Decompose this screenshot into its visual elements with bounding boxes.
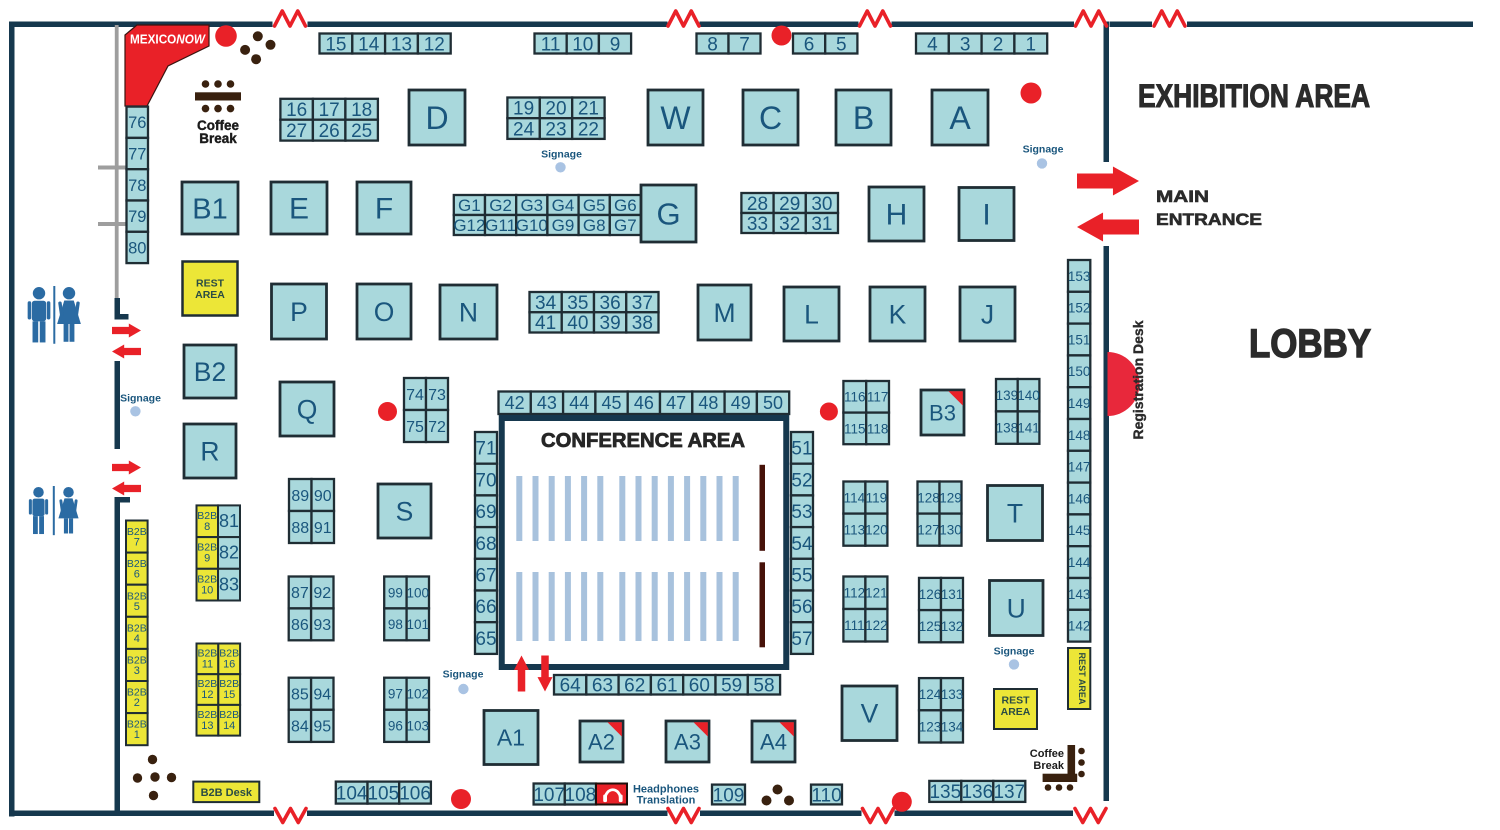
svg-text:G4: G4 xyxy=(552,196,575,215)
svg-text:89: 89 xyxy=(291,488,309,505)
svg-text:139: 139 xyxy=(996,388,1019,403)
svg-text:D: D xyxy=(425,100,448,136)
svg-text:68: 68 xyxy=(475,534,496,555)
svg-text:39: 39 xyxy=(600,313,621,334)
svg-text:142: 142 xyxy=(1068,619,1091,634)
svg-text:121: 121 xyxy=(865,586,888,601)
svg-text:46: 46 xyxy=(634,393,654,413)
svg-text:REST: REST xyxy=(1001,695,1030,707)
svg-text:43: 43 xyxy=(537,393,557,413)
svg-text:C: C xyxy=(759,100,782,136)
svg-text:22: 22 xyxy=(578,119,599,140)
svg-text:79: 79 xyxy=(128,208,146,226)
svg-text:51: 51 xyxy=(791,439,812,460)
svg-text:85: 85 xyxy=(291,687,309,704)
svg-text:37: 37 xyxy=(632,293,653,314)
svg-text:12: 12 xyxy=(424,34,445,55)
svg-text:14: 14 xyxy=(358,34,380,55)
svg-text:100: 100 xyxy=(407,585,430,600)
svg-text:30: 30 xyxy=(811,194,832,215)
svg-text:50: 50 xyxy=(763,393,783,413)
svg-text:83: 83 xyxy=(219,574,239,594)
svg-text:T: T xyxy=(1007,498,1023,528)
svg-text:16: 16 xyxy=(286,100,307,121)
svg-text:94: 94 xyxy=(313,687,331,704)
svg-text:2: 2 xyxy=(993,34,1004,55)
svg-text:44: 44 xyxy=(569,393,589,413)
svg-text:LOBBY: LOBBY xyxy=(1249,322,1371,366)
svg-text:145: 145 xyxy=(1068,523,1091,538)
svg-text:65: 65 xyxy=(475,629,496,650)
svg-text:140: 140 xyxy=(1017,388,1040,403)
svg-text:119: 119 xyxy=(866,490,888,505)
svg-text:MEXICONOW: MEXICONOW xyxy=(130,33,206,47)
svg-text:G1: G1 xyxy=(458,196,481,215)
svg-text:77: 77 xyxy=(128,145,146,163)
svg-text:A2: A2 xyxy=(588,729,615,754)
svg-text:60: 60 xyxy=(689,676,710,697)
svg-text:38: 38 xyxy=(632,313,653,334)
svg-text:150: 150 xyxy=(1068,364,1091,379)
svg-text:61: 61 xyxy=(656,676,677,697)
svg-text:118: 118 xyxy=(867,421,889,436)
svg-text:EXHIBITION AREA: EXHIBITION AREA xyxy=(1138,78,1370,114)
svg-text:Signage: Signage xyxy=(1023,144,1064,156)
svg-text:72: 72 xyxy=(428,419,446,436)
svg-text:9: 9 xyxy=(204,553,210,565)
svg-text:131: 131 xyxy=(941,587,964,602)
svg-text:36: 36 xyxy=(600,293,621,314)
svg-text:124: 124 xyxy=(919,687,942,702)
svg-text:104: 104 xyxy=(336,783,368,804)
svg-text:G7: G7 xyxy=(614,216,637,235)
svg-text:99: 99 xyxy=(388,585,403,600)
svg-text:35: 35 xyxy=(567,293,588,314)
svg-text:B2B Desk: B2B Desk xyxy=(201,787,253,799)
svg-text:Translation: Translation xyxy=(637,795,696,807)
svg-text:O: O xyxy=(374,297,395,327)
svg-text:138: 138 xyxy=(996,420,1019,435)
svg-text:31: 31 xyxy=(811,214,832,235)
svg-text:G6: G6 xyxy=(614,196,637,215)
svg-text:B3: B3 xyxy=(929,400,956,425)
svg-text:113: 113 xyxy=(844,523,866,538)
svg-text:G10: G10 xyxy=(516,216,548,235)
svg-text:133: 133 xyxy=(941,687,964,702)
svg-text:117: 117 xyxy=(867,390,889,405)
svg-text:108: 108 xyxy=(565,785,597,806)
svg-text:CONFERENCE AREA: CONFERENCE AREA xyxy=(541,429,745,452)
svg-text:73: 73 xyxy=(428,387,446,404)
svg-text:G9: G9 xyxy=(552,216,575,235)
svg-text:10: 10 xyxy=(201,584,213,596)
svg-text:B2: B2 xyxy=(194,357,226,387)
svg-text:91: 91 xyxy=(314,520,332,537)
svg-text:5: 5 xyxy=(134,601,140,613)
svg-text:137: 137 xyxy=(993,782,1025,803)
svg-text:A1: A1 xyxy=(497,725,525,751)
svg-text:42: 42 xyxy=(505,393,525,413)
svg-text:A4: A4 xyxy=(760,729,787,754)
svg-text:1: 1 xyxy=(1026,34,1037,55)
svg-text:64: 64 xyxy=(560,676,582,697)
svg-text:153: 153 xyxy=(1068,269,1091,284)
svg-text:Signage: Signage xyxy=(443,669,484,681)
svg-text:Coffee: Coffee xyxy=(1030,748,1064,760)
svg-text:H: H xyxy=(886,199,908,232)
svg-text:4: 4 xyxy=(927,34,938,55)
svg-text:A: A xyxy=(949,100,971,136)
svg-text:Break: Break xyxy=(1033,760,1064,772)
svg-text:18: 18 xyxy=(351,100,372,121)
svg-text:152: 152 xyxy=(1068,301,1091,316)
svg-text:21: 21 xyxy=(578,99,599,120)
svg-text:MAIN: MAIN xyxy=(1156,188,1209,206)
svg-text:32: 32 xyxy=(779,214,800,235)
svg-text:15: 15 xyxy=(223,689,235,701)
svg-text:101: 101 xyxy=(407,617,430,632)
svg-text:40: 40 xyxy=(567,313,588,334)
svg-text:1: 1 xyxy=(134,729,140,741)
svg-text:L: L xyxy=(804,299,819,329)
svg-text:6: 6 xyxy=(804,34,815,55)
svg-text:48: 48 xyxy=(698,393,718,413)
svg-text:52: 52 xyxy=(791,470,812,491)
svg-text:84: 84 xyxy=(291,719,309,736)
svg-text:109: 109 xyxy=(713,785,745,806)
svg-text:90: 90 xyxy=(314,488,332,505)
svg-text:W: W xyxy=(660,100,691,136)
svg-text:141: 141 xyxy=(1017,420,1040,435)
svg-text:25: 25 xyxy=(351,121,372,142)
svg-text:62: 62 xyxy=(624,676,645,697)
svg-text:10: 10 xyxy=(572,34,593,55)
svg-text:23: 23 xyxy=(545,119,566,140)
svg-text:66: 66 xyxy=(475,597,496,618)
svg-text:127: 127 xyxy=(917,523,940,538)
svg-text:K: K xyxy=(889,299,907,329)
svg-text:98: 98 xyxy=(388,617,403,632)
svg-text:ENTRANCE: ENTRANCE xyxy=(1156,211,1262,229)
svg-text:N: N xyxy=(459,297,478,327)
svg-text:115: 115 xyxy=(844,421,866,436)
svg-text:95: 95 xyxy=(313,719,331,736)
svg-text:P: P xyxy=(290,297,308,327)
svg-text:17: 17 xyxy=(319,100,340,121)
svg-text:97: 97 xyxy=(388,687,403,702)
svg-text:82: 82 xyxy=(219,543,239,563)
svg-text:G8: G8 xyxy=(583,216,606,235)
svg-text:7: 7 xyxy=(134,537,140,549)
svg-text:146: 146 xyxy=(1068,491,1091,506)
svg-text:27: 27 xyxy=(286,121,307,142)
svg-text:81: 81 xyxy=(219,511,239,531)
svg-text:Q: Q xyxy=(297,394,318,424)
svg-text:M: M xyxy=(713,298,735,328)
svg-text:151: 151 xyxy=(1068,332,1091,347)
svg-text:Signage: Signage xyxy=(120,393,161,405)
svg-text:92: 92 xyxy=(313,585,331,602)
svg-text:R: R xyxy=(200,436,219,466)
svg-text:59: 59 xyxy=(721,676,742,697)
svg-text:5: 5 xyxy=(836,34,847,55)
svg-text:G2: G2 xyxy=(489,196,512,215)
svg-text:55: 55 xyxy=(791,565,812,586)
svg-text:AREA: AREA xyxy=(195,289,225,301)
svg-text:112: 112 xyxy=(844,586,866,601)
svg-text:29: 29 xyxy=(779,194,800,215)
svg-text:126: 126 xyxy=(919,587,942,602)
svg-text:129: 129 xyxy=(939,490,962,505)
svg-text:147: 147 xyxy=(1068,460,1091,475)
svg-text:58: 58 xyxy=(753,676,774,697)
svg-text:Signage: Signage xyxy=(541,149,582,161)
svg-text:J: J xyxy=(981,299,994,329)
svg-text:13: 13 xyxy=(201,720,213,732)
svg-text:3: 3 xyxy=(960,34,971,55)
svg-text:135: 135 xyxy=(929,782,961,803)
svg-text:148: 148 xyxy=(1068,428,1091,443)
svg-text:110: 110 xyxy=(811,785,841,806)
svg-text:G11: G11 xyxy=(485,216,516,235)
svg-text:102: 102 xyxy=(407,687,430,702)
svg-text:74: 74 xyxy=(406,387,424,404)
svg-text:B: B xyxy=(853,100,874,136)
svg-text:125: 125 xyxy=(919,619,942,634)
svg-text:71: 71 xyxy=(475,439,496,460)
svg-text:Registration Desk: Registration Desk xyxy=(1130,320,1146,439)
svg-text:AREA: AREA xyxy=(1001,706,1031,718)
svg-text:S: S xyxy=(396,496,414,526)
svg-text:144: 144 xyxy=(1068,555,1091,570)
svg-text:2: 2 xyxy=(134,697,140,709)
svg-text:F: F xyxy=(375,193,393,226)
svg-text:16: 16 xyxy=(223,659,235,671)
svg-text:105: 105 xyxy=(367,783,399,804)
svg-text:7: 7 xyxy=(739,34,750,55)
svg-text:15: 15 xyxy=(325,34,346,55)
svg-text:28: 28 xyxy=(747,194,768,215)
svg-text:8: 8 xyxy=(204,521,210,533)
svg-text:87: 87 xyxy=(291,585,309,602)
svg-text:G: G xyxy=(656,197,680,232)
svg-text:49: 49 xyxy=(731,393,751,413)
svg-text:63: 63 xyxy=(592,676,613,697)
svg-text:U: U xyxy=(1007,593,1026,623)
svg-text:41: 41 xyxy=(535,313,556,334)
svg-text:103: 103 xyxy=(407,719,430,734)
svg-text:130: 130 xyxy=(939,523,962,538)
svg-text:A3: A3 xyxy=(674,729,701,754)
svg-text:96: 96 xyxy=(388,719,403,734)
svg-text:3: 3 xyxy=(134,665,140,677)
svg-text:12: 12 xyxy=(201,689,213,701)
svg-text:116: 116 xyxy=(844,390,866,405)
svg-text:4: 4 xyxy=(134,633,140,645)
svg-text:45: 45 xyxy=(602,393,622,413)
svg-text:149: 149 xyxy=(1068,396,1091,411)
svg-text:76: 76 xyxy=(128,114,146,132)
svg-text:56: 56 xyxy=(791,597,812,618)
svg-text:57: 57 xyxy=(791,629,812,650)
svg-text:106: 106 xyxy=(399,783,431,804)
svg-text:80: 80 xyxy=(128,239,146,257)
svg-text:53: 53 xyxy=(791,502,812,523)
svg-text:B1: B1 xyxy=(192,193,227,225)
svg-text:13: 13 xyxy=(391,34,412,55)
svg-text:8: 8 xyxy=(707,34,718,55)
svg-text:24: 24 xyxy=(513,119,535,140)
svg-text:20: 20 xyxy=(545,99,566,120)
svg-text:6: 6 xyxy=(134,569,140,581)
svg-text:134: 134 xyxy=(941,719,964,734)
svg-text:G12: G12 xyxy=(453,216,485,235)
svg-text:120: 120 xyxy=(865,523,888,538)
svg-text:122: 122 xyxy=(865,618,888,633)
svg-text:G3: G3 xyxy=(520,196,543,215)
svg-text:54: 54 xyxy=(791,534,813,555)
svg-text:Signage: Signage xyxy=(994,646,1035,658)
svg-text:33: 33 xyxy=(747,214,768,235)
svg-text:REST AREA: REST AREA xyxy=(1076,653,1087,705)
svg-text:G5: G5 xyxy=(583,196,606,215)
svg-text:E: E xyxy=(289,193,309,226)
svg-text:111: 111 xyxy=(844,618,865,633)
svg-text:14: 14 xyxy=(223,720,235,732)
svg-text:78: 78 xyxy=(128,177,146,195)
svg-text:128: 128 xyxy=(917,490,940,505)
svg-text:V: V xyxy=(861,699,879,729)
svg-text:Break: Break xyxy=(199,131,237,146)
svg-text:136: 136 xyxy=(961,782,993,803)
svg-text:107: 107 xyxy=(533,785,565,806)
svg-text:86: 86 xyxy=(291,617,309,634)
svg-text:88: 88 xyxy=(291,520,309,537)
svg-text:67: 67 xyxy=(475,565,496,586)
svg-text:47: 47 xyxy=(666,393,686,413)
svg-text:69: 69 xyxy=(475,502,496,523)
svg-text:34: 34 xyxy=(535,293,557,314)
svg-text:123: 123 xyxy=(919,719,942,734)
svg-text:9: 9 xyxy=(610,34,621,55)
svg-text:93: 93 xyxy=(313,617,331,634)
svg-text:REST: REST xyxy=(196,278,225,290)
svg-text:19: 19 xyxy=(513,99,534,120)
svg-text:132: 132 xyxy=(941,619,964,634)
svg-text:70: 70 xyxy=(475,470,496,491)
svg-text:75: 75 xyxy=(406,419,424,436)
svg-text:11: 11 xyxy=(541,34,561,55)
svg-text:I: I xyxy=(982,199,990,232)
svg-text:26: 26 xyxy=(319,121,340,142)
svg-text:11: 11 xyxy=(202,659,213,671)
svg-text:143: 143 xyxy=(1068,587,1091,602)
svg-text:114: 114 xyxy=(844,490,866,505)
